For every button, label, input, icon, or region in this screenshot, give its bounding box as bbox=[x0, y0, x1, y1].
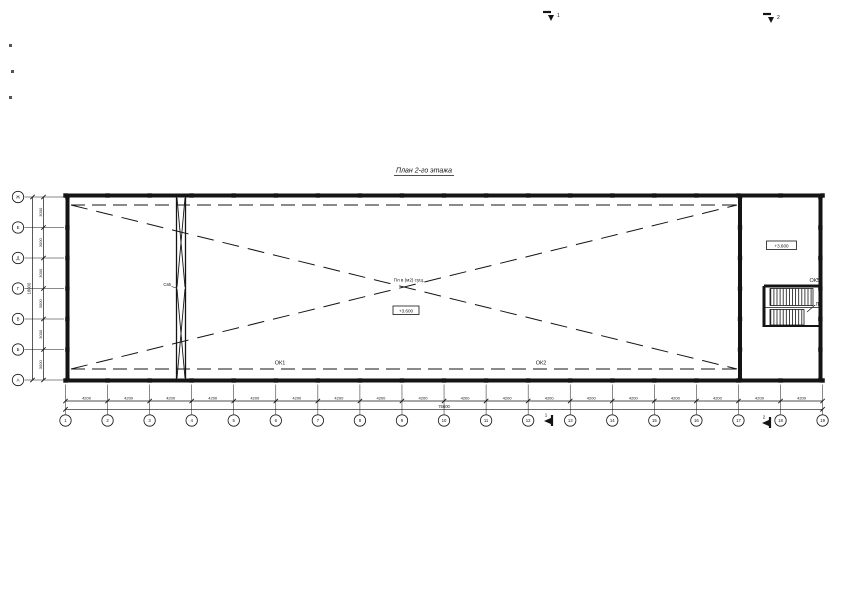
axis-number: 18 bbox=[778, 418, 783, 423]
stair-level-value: +3.600 bbox=[774, 244, 789, 249]
axis-number: 15 bbox=[652, 418, 657, 423]
window-label-ok2: ОК2 bbox=[536, 361, 547, 367]
axis-letter: Ж bbox=[16, 195, 20, 200]
dim-segment-left: 3000 bbox=[38, 360, 43, 370]
section-arrow-icon bbox=[548, 15, 554, 21]
column-mark bbox=[484, 378, 488, 382]
column-mark bbox=[274, 378, 278, 382]
column-mark bbox=[610, 378, 614, 382]
column-mark bbox=[694, 378, 698, 382]
window-label-ok1: ОК1 bbox=[275, 361, 286, 367]
column-mark bbox=[358, 193, 362, 197]
svg-text:1: 1 bbox=[545, 413, 548, 418]
column-mark bbox=[778, 193, 782, 197]
column-mark bbox=[65, 286, 69, 290]
stair-leader bbox=[807, 305, 815, 312]
column-mark bbox=[65, 347, 69, 351]
column-mark bbox=[818, 378, 822, 382]
column-mark bbox=[189, 193, 193, 197]
axis-number: 16 bbox=[694, 418, 699, 423]
dim-segment-bottom: 4200 bbox=[166, 396, 176, 401]
drawing-sheet: План 2-го этажа Св5 Пл в (м2) сущ. +3.60… bbox=[0, 0, 842, 595]
dim-segment-bottom: 4200 bbox=[376, 396, 386, 401]
column-mark bbox=[526, 193, 530, 197]
column-mark bbox=[818, 225, 822, 229]
dim-segment-bottom: 4200 bbox=[503, 396, 513, 401]
dim-segment-left: 3000 bbox=[38, 207, 43, 217]
column-mark bbox=[274, 193, 278, 197]
dim-segment-left: 3000 bbox=[38, 299, 43, 309]
column-mark bbox=[738, 286, 742, 290]
center-note: Пл в (м2) сущ. bbox=[394, 278, 425, 283]
dim-segment-bottom: 4200 bbox=[419, 396, 429, 401]
section-mark-bottom-1: 1 bbox=[544, 413, 552, 427]
axis-number: 12 bbox=[526, 418, 531, 423]
dim-segment-bottom: 4200 bbox=[797, 396, 807, 401]
column-mark bbox=[738, 347, 742, 351]
column-mark bbox=[442, 193, 446, 197]
svg-text:2: 2 bbox=[763, 415, 766, 420]
column-mark bbox=[400, 378, 404, 382]
column-mark bbox=[738, 256, 742, 260]
column-mark bbox=[818, 347, 822, 351]
dim-segment-bottom: 4200 bbox=[124, 396, 134, 401]
stair-label: Л2 bbox=[816, 302, 822, 308]
axis-letter: Е bbox=[17, 225, 20, 230]
dim-segment-bottom: 4200 bbox=[755, 396, 765, 401]
column-mark bbox=[65, 256, 69, 260]
column-mark bbox=[358, 378, 362, 382]
column-mark bbox=[738, 317, 742, 321]
column-mark bbox=[738, 225, 742, 229]
bracing-label: Св5 bbox=[163, 282, 171, 287]
column-mark bbox=[738, 195, 742, 199]
column-mark bbox=[484, 193, 488, 197]
axis-number: 13 bbox=[568, 418, 573, 423]
axis-letter: А bbox=[17, 378, 20, 383]
dim-segment-bottom: 4200 bbox=[587, 396, 597, 401]
column-mark bbox=[818, 286, 822, 290]
column-mark bbox=[105, 193, 109, 197]
axis-and-dimension-layer: 7560014200242003420044200542006420074200… bbox=[12, 191, 828, 426]
section-arrow-icon bbox=[768, 17, 774, 23]
bracing-leader bbox=[172, 287, 177, 289]
column-mark bbox=[65, 195, 69, 199]
dim-segment-bottom: 4200 bbox=[334, 396, 344, 401]
column-mark bbox=[652, 193, 656, 197]
column-mark bbox=[568, 193, 572, 197]
svg-text:1: 1 bbox=[557, 13, 560, 19]
dim-segment-bottom: 4200 bbox=[250, 396, 260, 401]
axis-letter: В bbox=[17, 317, 20, 322]
column-mark bbox=[189, 378, 193, 382]
axis-number: 10 bbox=[442, 418, 447, 423]
axis-letter: Б bbox=[17, 347, 20, 352]
column-mark bbox=[105, 378, 109, 382]
axis-number: 17 bbox=[736, 418, 741, 423]
column-mark bbox=[610, 193, 614, 197]
dim-segment-bottom: 4200 bbox=[671, 396, 681, 401]
dim-segment-bottom: 4200 bbox=[629, 396, 639, 401]
dim-total-left: 18000 bbox=[27, 282, 32, 294]
column-mark bbox=[316, 193, 320, 197]
column-mark bbox=[818, 256, 822, 260]
column-mark bbox=[232, 193, 236, 197]
dim-segment-bottom: 4200 bbox=[82, 396, 92, 401]
axis-number: 11 bbox=[484, 418, 489, 423]
column-mark bbox=[65, 378, 69, 382]
stray-mark bbox=[11, 70, 14, 73]
center-level-value: +3.600 bbox=[399, 309, 414, 314]
axis-number: 19 bbox=[820, 418, 825, 423]
dim-segment-left: 3000 bbox=[38, 268, 43, 278]
column-mark bbox=[147, 378, 151, 382]
column-mark bbox=[65, 225, 69, 229]
window-label-ok5: ОК5 bbox=[809, 278, 820, 284]
building-outer-wall bbox=[68, 196, 821, 381]
column-mark bbox=[652, 378, 656, 382]
column-mark bbox=[400, 193, 404, 197]
column-mark bbox=[738, 378, 742, 382]
column-mark bbox=[818, 317, 822, 321]
section-arrow-icon bbox=[762, 420, 770, 427]
svg-text:2: 2 bbox=[777, 15, 780, 21]
drawing-title: План 2-го этажа bbox=[396, 168, 452, 175]
column-mark bbox=[442, 378, 446, 382]
column-mark bbox=[147, 193, 151, 197]
dim-total-bottom: 75600 bbox=[438, 404, 450, 409]
column-mark bbox=[526, 378, 530, 382]
axis-letter: Д bbox=[17, 256, 20, 261]
dim-segment-bottom: 4200 bbox=[208, 396, 218, 401]
axis-number: 14 bbox=[610, 418, 615, 423]
column-mark bbox=[65, 317, 69, 321]
column-mark bbox=[232, 378, 236, 382]
section-mark-top-1: 1 bbox=[543, 12, 560, 21]
dim-segment-bottom: 4200 bbox=[292, 396, 302, 401]
stair-flight-upper bbox=[770, 289, 813, 306]
column-mark bbox=[694, 193, 698, 197]
stray-mark bbox=[9, 96, 12, 99]
dim-segment-bottom: 4200 bbox=[461, 396, 471, 401]
column-mark bbox=[316, 378, 320, 382]
stair-risers bbox=[771, 289, 811, 326]
dim-segment-left: 3000 bbox=[38, 329, 43, 339]
floor-plan-drawing: План 2-го этажа Св5 Пл в (м2) сущ. +3.60… bbox=[0, 0, 842, 595]
column-mark bbox=[568, 378, 572, 382]
dim-segment-bottom: 4200 bbox=[713, 396, 723, 401]
dim-segment-bottom: 4200 bbox=[545, 396, 555, 401]
column-mark bbox=[818, 195, 822, 199]
stray-mark bbox=[9, 44, 12, 47]
section-mark-top-2: 2 bbox=[763, 14, 780, 23]
dim-segment-left: 3000 bbox=[38, 238, 43, 248]
section-mark-bottom-2: 2 bbox=[762, 415, 770, 429]
section-arrow-icon bbox=[544, 418, 552, 425]
column-mark bbox=[778, 378, 782, 382]
